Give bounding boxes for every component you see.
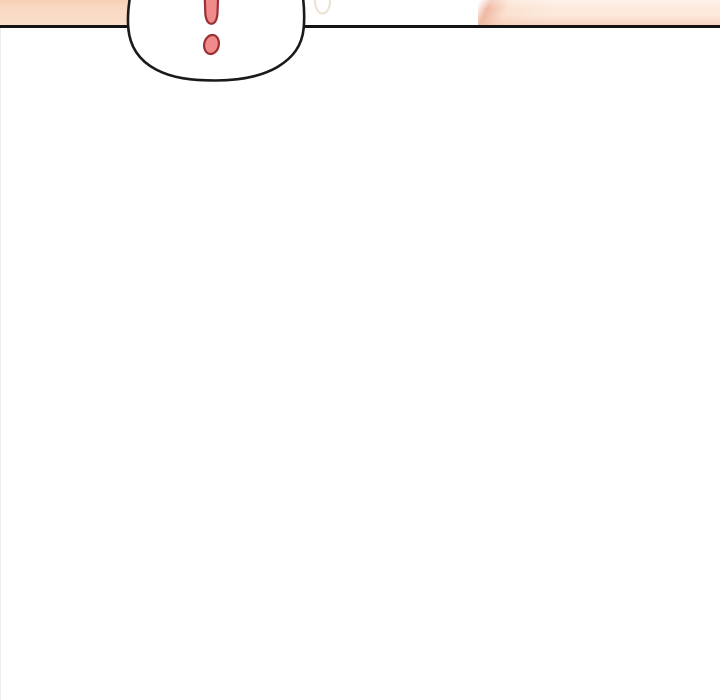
page-left-edge-line: [0, 28, 1, 700]
panel-top-art: [0, 0, 720, 110]
page-canvas: [0, 0, 720, 700]
exclamation-bar: [205, 0, 219, 24]
background-oval-detail: [315, 0, 330, 14]
